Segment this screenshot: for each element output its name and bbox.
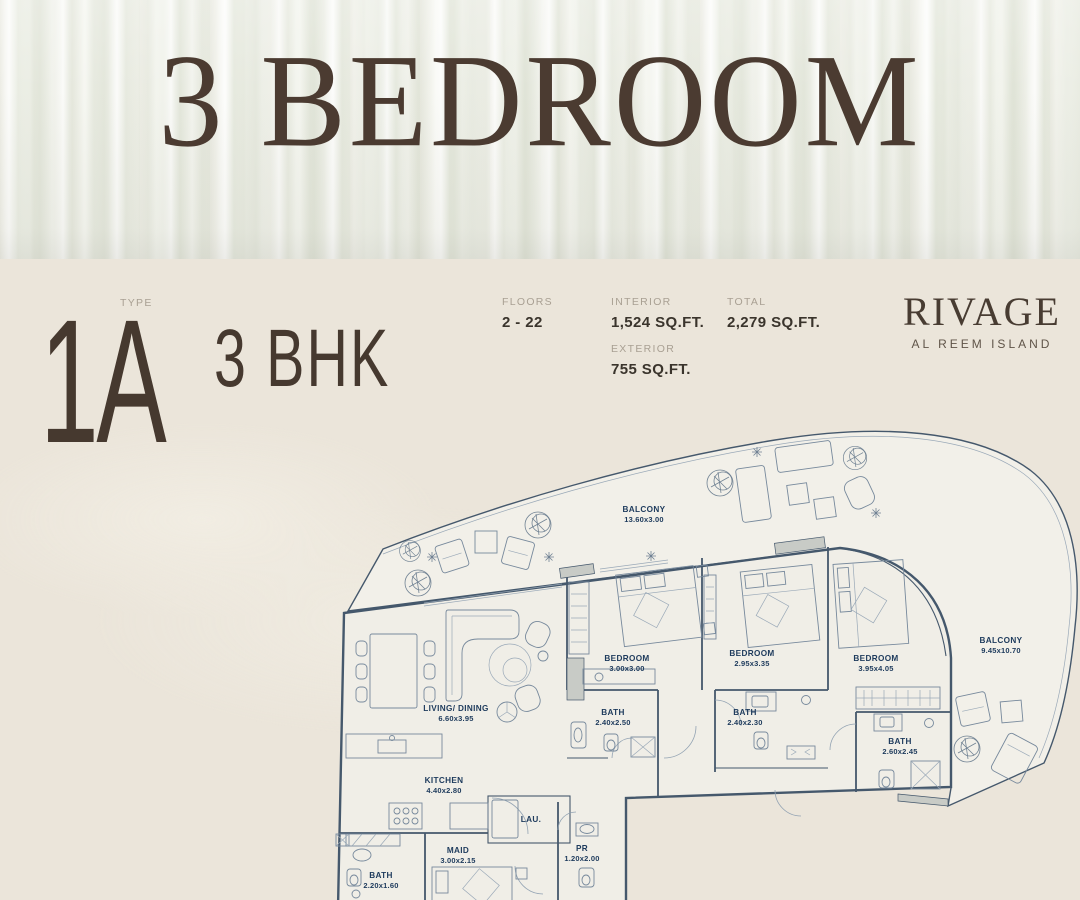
svg-text:2.40x2.30: 2.40x2.30 <box>727 718 762 727</box>
exterior-label: EXTERIOR <box>611 343 691 355</box>
floor-plan: BALCONY 13.60x3.00 BALCONY 9.45x10.70 LI… <box>330 418 1080 900</box>
svg-text:9.45x10.70: 9.45x10.70 <box>981 646 1021 655</box>
brand-location: AL REEM ISLAND <box>903 337 1061 351</box>
unit-type-value: 1A <box>40 302 164 464</box>
svg-text:4.40x2.80: 4.40x2.80 <box>426 786 461 795</box>
exterior-value: 755 SQ.FT. <box>611 361 691 378</box>
room-label-bedroom-2: BEDROOM <box>729 649 774 658</box>
room-label-maid: MAID <box>447 846 469 855</box>
curtain-hero-banner: 3 BEDROOM <box>0 0 1080 259</box>
svg-text:2.40x2.50: 2.40x2.50 <box>595 718 630 727</box>
room-label-bedroom-1: BEDROOM <box>604 654 649 663</box>
svg-text:1.20x2.00: 1.20x2.00 <box>564 854 599 863</box>
room-label-pr: PR <box>576 844 588 853</box>
brand-name: RIVAGE <box>903 292 1061 332</box>
apartment-outline <box>338 548 951 900</box>
room-label-bath-2: BATH <box>733 708 757 717</box>
total-label: TOTAL <box>727 296 820 308</box>
unit-layout-value: 3 BHK <box>214 322 390 396</box>
brand-logo: RIVAGE AL REEM ISLAND <box>903 292 1061 351</box>
interior-label: INTERIOR <box>611 296 704 308</box>
floors-label: FLOORS <box>502 296 553 308</box>
total-value: 2,279 SQ.FT. <box>727 314 820 331</box>
svg-text:13.60x3.00: 13.60x3.00 <box>624 515 664 524</box>
stat-total: TOTAL 2,279 SQ.FT. <box>727 296 820 331</box>
page-title: 3 BEDROOM <box>0 34 1080 167</box>
stat-exterior: EXTERIOR 755 SQ.FT. <box>611 343 691 378</box>
room-label-kitchen: KITCHEN <box>425 776 464 785</box>
room-label-laundry: LAU. <box>521 815 542 824</box>
room-label-bath-3: BATH <box>888 737 912 746</box>
svg-text:6.60x3.95: 6.60x3.95 <box>438 714 473 723</box>
room-label-balcony-top: BALCONY <box>623 505 666 514</box>
interior-value: 1,524 SQ.FT. <box>611 314 704 331</box>
room-label-bath-maid: BATH <box>369 871 393 880</box>
floors-value: 2 - 22 <box>502 314 553 331</box>
svg-text:3.95x4.05: 3.95x4.05 <box>858 664 893 673</box>
room-label-living-dining: LIVING/ DINING <box>423 704 488 713</box>
stat-interior: INTERIOR 1,524 SQ.FT. <box>611 296 704 331</box>
svg-text:2.95x3.35: 2.95x3.35 <box>734 659 769 668</box>
svg-text:3.00x2.15: 3.00x2.15 <box>440 856 475 865</box>
room-label-bedroom-3: BEDROOM <box>853 654 898 663</box>
room-label-balcony-right: BALCONY <box>980 636 1023 645</box>
svg-text:3.00x3.00: 3.00x3.00 <box>609 664 644 673</box>
svg-text:2.60x2.45: 2.60x2.45 <box>882 747 917 756</box>
stat-floors: FLOORS 2 - 22 <box>502 296 553 331</box>
svg-text:2.20x1.60: 2.20x1.60 <box>363 881 398 890</box>
room-label-bath-1: BATH <box>601 708 625 717</box>
